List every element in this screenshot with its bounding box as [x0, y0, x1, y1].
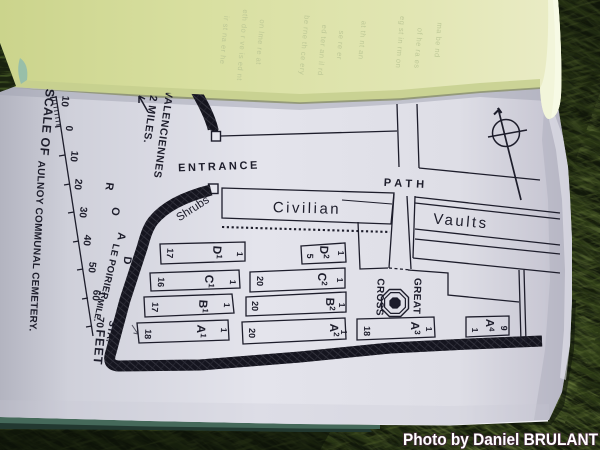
svg-text:1: 1: [470, 328, 480, 333]
svg-text:GREAT: GREAT: [410, 278, 422, 315]
svg-text:17: 17: [165, 248, 176, 259]
svg-text:1: 1: [235, 251, 245, 257]
svg-text:A: A: [114, 232, 127, 242]
svg-text:17: 17: [150, 302, 161, 313]
svg-text:30: 30: [76, 206, 88, 219]
svg-text:20: 20: [71, 178, 83, 191]
svg-text:5: 5: [305, 253, 315, 258]
svg-text:PATH: PATH: [384, 177, 429, 191]
svg-text:1: 1: [335, 278, 345, 283]
svg-text:1: 1: [424, 327, 434, 332]
svg-text:Civilian: Civilian: [273, 199, 342, 218]
svg-text:1: 1: [219, 327, 229, 333]
svg-text:1: 1: [222, 302, 232, 308]
svg-text:20: 20: [250, 301, 260, 311]
svg-text:1: 1: [336, 251, 346, 256]
svg-text:1: 1: [228, 279, 238, 285]
svg-text:20: 20: [255, 276, 265, 286]
svg-text:1: 1: [337, 303, 347, 308]
svg-text:16: 16: [156, 277, 167, 288]
svg-text:18: 18: [143, 329, 154, 340]
svg-text:10: 10: [67, 150, 79, 163]
svg-text:50: 50: [85, 261, 97, 274]
svg-text:18: 18: [362, 326, 372, 336]
svg-text:Photo by Daniel BRULANT: Photo by Daniel BRULANT: [403, 431, 598, 449]
svg-text:R: R: [102, 182, 115, 192]
svg-text:1: 1: [339, 330, 349, 335]
svg-text:10: 10: [58, 95, 70, 108]
svg-text:9: 9: [499, 325, 509, 330]
svg-text:CROSS: CROSS: [373, 278, 385, 316]
svg-text:40: 40: [80, 234, 92, 247]
svg-text:20: 20: [247, 328, 257, 338]
